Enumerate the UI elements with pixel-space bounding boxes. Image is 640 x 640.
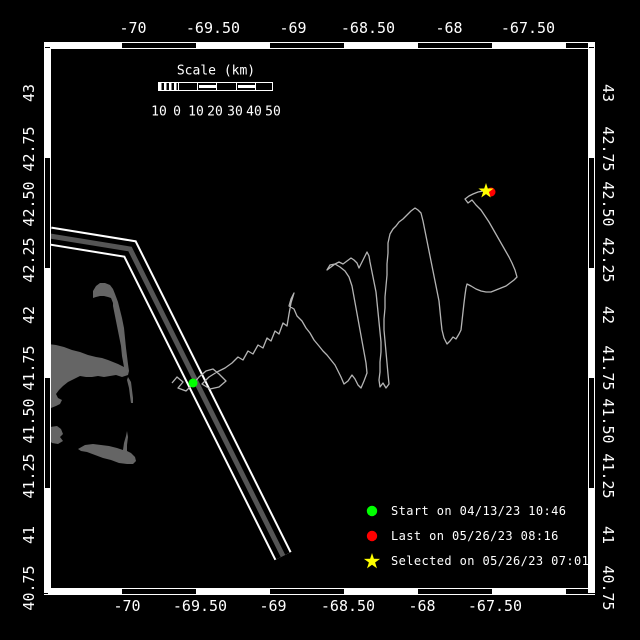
scale-bar-hatch xyxy=(159,83,178,90)
dot-icon xyxy=(362,526,382,546)
scale-bar-cell xyxy=(236,83,255,90)
scale-bar-cell xyxy=(197,83,216,90)
start-position-marker[interactable] xyxy=(189,379,198,388)
scale-bar-cell xyxy=(216,83,235,90)
legend-item: Start on 04/13/23 10:46 xyxy=(362,498,589,523)
scale-bar xyxy=(158,82,273,91)
track-legend: Start on 04/13/23 10:46Last on 05/26/23 … xyxy=(362,498,589,573)
scale-bar-cell xyxy=(178,83,197,90)
scale-bar-cell xyxy=(255,83,274,90)
scale-bar-cell-fill xyxy=(238,85,255,89)
dot-icon xyxy=(362,501,382,521)
coastline-land xyxy=(127,377,133,403)
scale-bar-cell-fill xyxy=(199,85,216,89)
shipping-lane-gap xyxy=(50,236,283,556)
map-window: -70-69.50-69-68.50-68-67.50 -70-69.50-69… xyxy=(0,0,640,640)
star-icon xyxy=(362,551,382,571)
legend-label: Start on 04/13/23 10:46 xyxy=(391,504,566,518)
shipping-lane-core xyxy=(50,236,283,556)
scale-bar-label: 10 xyxy=(188,105,204,120)
scale-bar-label: 30 xyxy=(227,105,243,120)
scale-bar-label: 20 xyxy=(207,105,223,120)
scale-bar-label: 40 xyxy=(246,105,262,120)
legend-label: Last on 05/26/23 08:16 xyxy=(391,529,559,543)
scale-bar-label: 0 xyxy=(173,105,181,120)
vehicle-track[interactable] xyxy=(172,191,517,391)
coastline-land xyxy=(48,283,129,410)
shipping-lane-outline xyxy=(50,236,283,556)
coastline-land xyxy=(49,426,63,444)
legend-item: Selected on 05/26/23 07:01 xyxy=(362,548,589,573)
scale-bar-title: Scale (km) xyxy=(177,64,255,79)
legend-item: Last on 05/26/23 08:16 xyxy=(362,523,589,548)
scale-bar-label: 10 xyxy=(151,105,167,120)
scale-bar-label: 50 xyxy=(265,105,281,120)
coastline-land xyxy=(78,431,136,464)
legend-label: Selected on 05/26/23 07:01 xyxy=(391,554,589,568)
